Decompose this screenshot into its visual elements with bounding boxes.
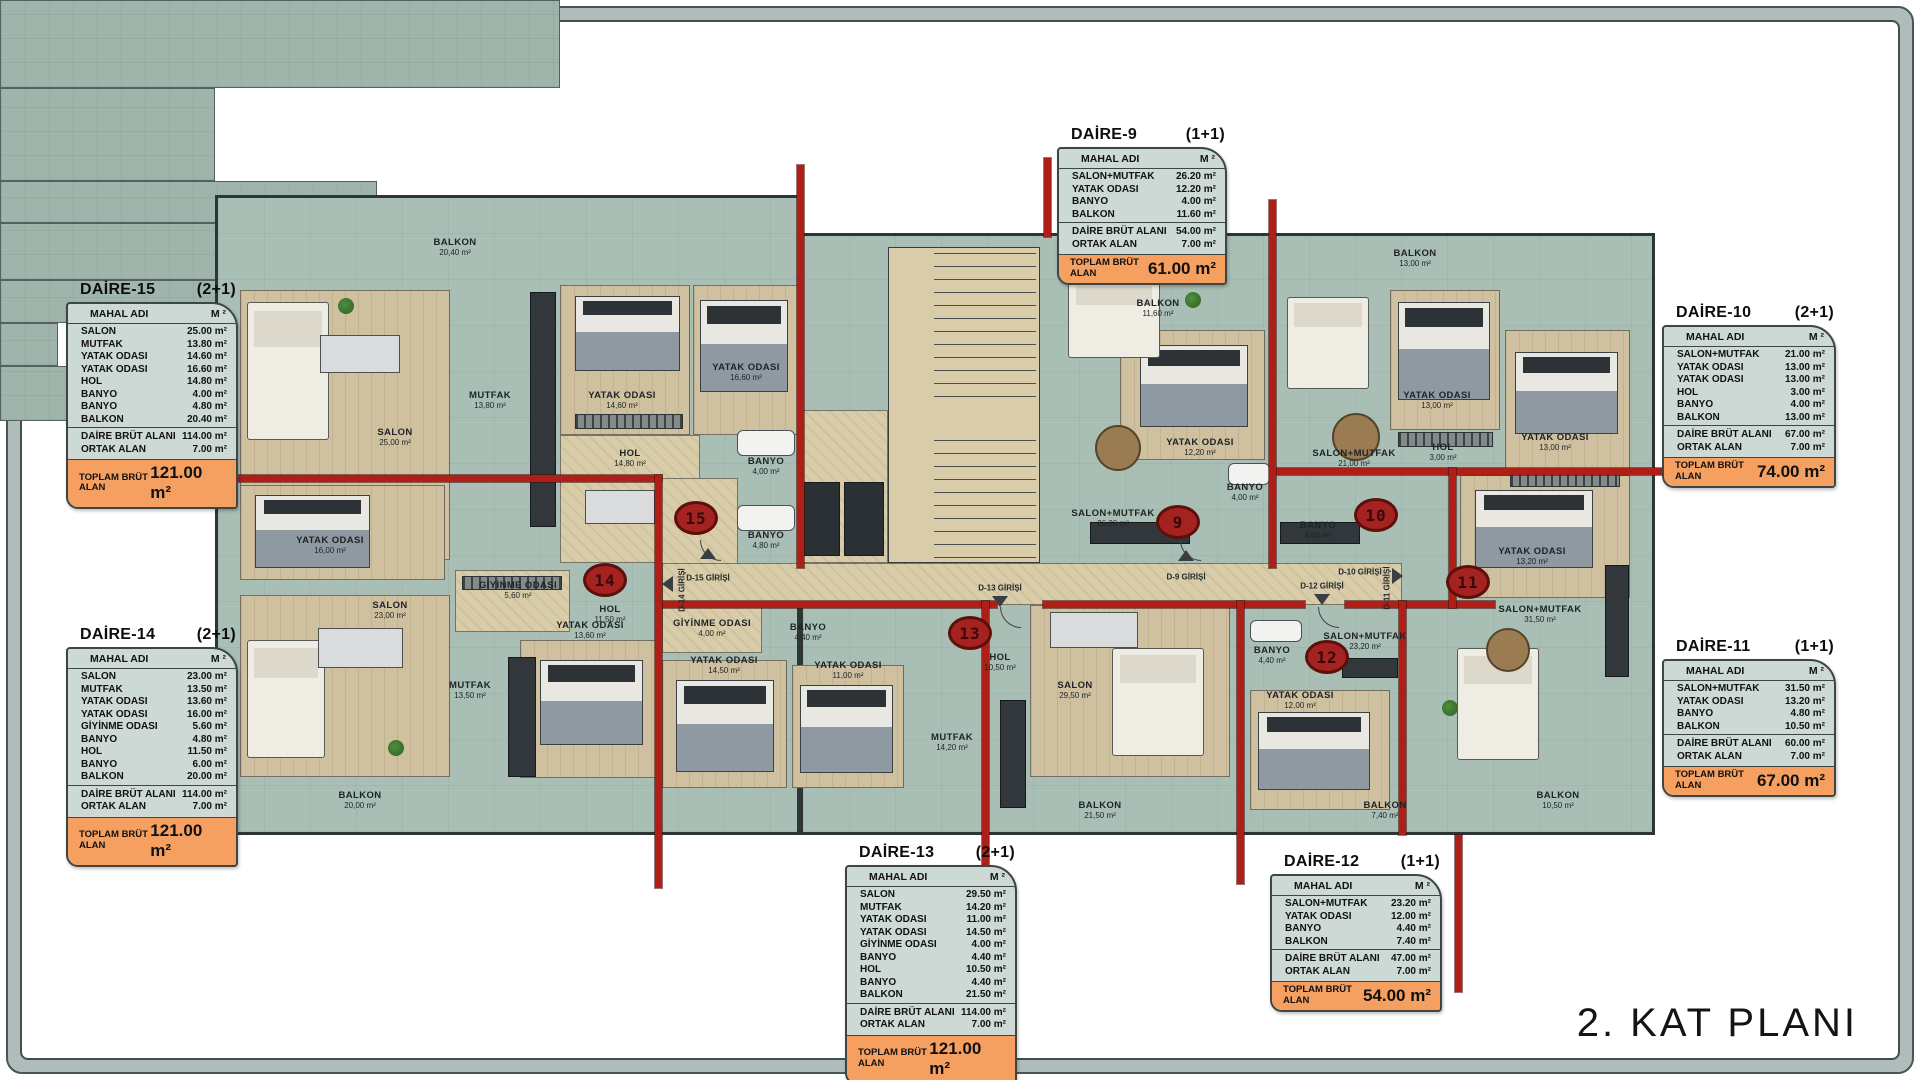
apartment-type: (2+1) [1795, 304, 1834, 322]
room-label: BALKON7,40 m² [1363, 800, 1406, 820]
room-rows: SALON+MUTFAK21.00 m²YATAK ODASI13.00 m²Y… [1664, 347, 1834, 425]
entrance-arrow-icon [1314, 594, 1330, 605]
col-m2: M ² [211, 653, 226, 665]
dining-table [585, 490, 655, 524]
table-row: SALON29.50 m² [847, 889, 1015, 902]
kitchen-counter [508, 657, 536, 777]
room-area: 13.50 m² [187, 684, 227, 697]
apartment-title: DAİRE-9(1+1) [1057, 126, 1227, 147]
room-label: YATAK ODASI16,60 m² [712, 362, 780, 382]
subtotal-section: DAİRE BRÜT ALANI67.00 m² ORTAK ALAN7.00 … [1664, 425, 1834, 457]
table-row: SALON+MUTFAK23.20 m² [1272, 898, 1440, 911]
round-table [1486, 628, 1530, 672]
sofa [1112, 648, 1204, 756]
unit-number: 15 [685, 509, 706, 528]
room-label: BALKON10,50 m² [1536, 790, 1579, 810]
room-label: SALON29,50 m² [1057, 680, 1092, 700]
room-area: 26.20 m² [1176, 171, 1216, 184]
room-label: YATAK ODASI13,60 m² [556, 620, 624, 640]
total-band: TOPLAM BRÜT ALAN67.00 m² [1664, 766, 1834, 795]
table-row: HOL11.50 m² [68, 746, 236, 759]
bathtub [737, 505, 795, 531]
table-row: YATAK ODASI12.00 m² [1272, 911, 1440, 924]
room-area: 10.50 m² [966, 964, 1006, 977]
kitchen-counter [530, 292, 556, 527]
dining-table [320, 335, 400, 373]
elevator-shaft [844, 482, 884, 556]
room-label: YATAK ODASI13,20 m² [1498, 546, 1566, 566]
room-label: BALKON11,60 m² [1136, 298, 1179, 318]
room-area: 14.60 m² [187, 351, 227, 364]
room-area: 4.80 m² [1791, 708, 1825, 721]
bed [255, 495, 370, 568]
area-table: MAHAL ADIM ² SALON+MUTFAK23.20 m²YATAK O… [1270, 874, 1442, 1012]
table-row: YATAK ODASI14.60 m² [68, 351, 236, 364]
room-area: 11.50 m² [188, 746, 227, 759]
balcony [0, 323, 58, 366]
unit-marker-14: 14 [583, 563, 627, 597]
bathtub [1250, 620, 1302, 642]
col-mahal-adi: MAHAL ADI [1081, 153, 1139, 165]
total-band: TOPLAM BRÜT ALAN121.00 m² [68, 817, 236, 865]
room-rows: SALON25.00 m²MUTFAK13.80 m²YATAK ODASI14… [68, 324, 236, 427]
room-label: BALKON13,00 m² [1393, 248, 1436, 268]
room-name: YATAK ODASI [81, 696, 148, 709]
room-label: YATAK ODASI12,00 m² [1266, 690, 1334, 710]
room-area: 4.00 m² [193, 389, 227, 402]
table-row: BALKON11.60 m² [1059, 209, 1225, 222]
apartment-card-daire-11: DAİRE-11(1+1) MAHAL ADIM ² SALON+MUTFAK3… [1662, 638, 1836, 797]
entrance-arrow-icon [1178, 550, 1194, 561]
room-name: SALON [81, 326, 116, 339]
room-name: BALKON [81, 771, 124, 784]
apartment-title: DAİRE-15(2+1) [66, 281, 238, 302]
plan-canvas: 15 14 13 9 10 11 12 D-15 GİRİŞİ D-14 GİR… [0, 0, 1920, 1080]
room-label: BANYO4,00 m² [748, 456, 784, 476]
floor-plan-title: 2. KAT PLANI [1577, 1001, 1858, 1046]
bed [676, 680, 774, 772]
subtotal-section: DAİRE BRÜT ALANI114.00 m² ORTAK ALAN7.00… [68, 785, 236, 817]
kitchen-counter [1000, 700, 1026, 808]
room-area: 10.50 m² [1785, 721, 1825, 734]
room-area: 25.00 m² [187, 326, 227, 339]
table-row: HOL3.00 m² [1664, 387, 1834, 400]
room-name: BANYO [1072, 196, 1108, 209]
table-row: MUTFAK13.50 m² [68, 684, 236, 697]
apartment-name: DAİRE-13 [859, 844, 934, 861]
room-name: BALKON [1677, 412, 1720, 425]
staircase [888, 247, 1040, 563]
room-area: 11.60 m² [1177, 209, 1216, 222]
table-row: BANYO4.80 m² [1664, 708, 1834, 721]
room-name: BANYO [860, 977, 896, 990]
brut-row: DAİRE BRÜT ALANI47.00 m² [1272, 953, 1440, 966]
room-label: MUTFAK13,80 m² [469, 390, 511, 410]
room-name: YATAK ODASI [1677, 362, 1744, 375]
room-label: SALON+MUTFAK26,20 m² [1071, 508, 1154, 528]
unit-marker-9: 9 [1156, 505, 1200, 539]
room-label: YATAK ODASI13,00 m² [1521, 432, 1589, 452]
sofa [247, 302, 329, 440]
brut-row: DAİRE BRÜT ALANI114.00 m² [68, 789, 236, 802]
room-name: SALON+MUTFAK [1677, 349, 1760, 362]
red-section-line [1043, 601, 1305, 608]
room-label: BALKON20,00 m² [338, 790, 381, 810]
table-row: YATAK ODASI16.60 m² [68, 364, 236, 377]
room-label: SALON+MUTFAK23,20 m² [1323, 631, 1406, 651]
room-name: GİYİNME ODASI [860, 939, 937, 952]
table-row: BANYO4.40 m² [847, 952, 1015, 965]
room-name: YATAK ODASI [1072, 184, 1139, 197]
table-row: YATAK ODASI16.00 m² [68, 709, 236, 722]
room-name: HOL [81, 746, 102, 759]
unit-marker-10: 10 [1354, 498, 1398, 532]
ortak-row: ORTAK ALAN7.00 m² [1272, 966, 1440, 979]
col-m2: M ² [1415, 880, 1430, 892]
apartment-name: DAİRE-15 [80, 281, 155, 298]
total-band: TOPLAM BRÜT ALAN121.00 m² [68, 459, 236, 507]
room-area: 13.20 m² [1785, 696, 1825, 709]
col-mahal-adi: MAHAL ADI [1686, 665, 1744, 677]
table-row: BALKON20.40 m² [68, 414, 236, 427]
room-area: 20.40 m² [187, 414, 227, 427]
room-label: SALON23,00 m² [372, 600, 407, 620]
room-name: YATAK ODASI [81, 364, 148, 377]
table-row: YATAK ODASI13.20 m² [1664, 696, 1834, 709]
room-name: YATAK ODASI [1677, 374, 1744, 387]
round-table [1095, 425, 1141, 471]
room-area: 14.20 m² [966, 902, 1006, 915]
entrance-arrow-icon [1392, 568, 1403, 584]
col-mahal-adi: MAHAL ADI [1294, 880, 1352, 892]
table-row: YATAK ODASI13.00 m² [1664, 374, 1834, 387]
room-area: 11.00 m² [967, 914, 1006, 927]
table-row: BANYO4.00 m² [1664, 399, 1834, 412]
table-row: SALON+MUTFAK26.20 m² [1059, 171, 1225, 184]
room-rows: SALON+MUTFAK31.50 m²YATAK ODASI13.20 m²B… [1664, 681, 1834, 734]
room-area: 13.00 m² [1785, 412, 1825, 425]
corridor [662, 563, 1402, 605]
bed [575, 296, 680, 371]
room-label: YATAK ODASI13,00 m² [1403, 390, 1471, 410]
room-area: 16.00 m² [187, 709, 227, 722]
ortak-row: ORTAK ALAN7.00 m² [1664, 442, 1834, 455]
room-name: SALON [81, 671, 116, 684]
room-name: YATAK ODASI [81, 709, 148, 722]
apartment-name: DAİRE-14 [80, 626, 155, 643]
room-name: YATAK ODASI [860, 927, 927, 940]
apartment-title: DAİRE-13(2+1) [845, 844, 1017, 865]
entrance-label-d11: D-11 GİRİŞİ [1383, 566, 1392, 609]
red-section-line [1345, 601, 1495, 608]
sofa [1068, 280, 1160, 358]
area-table: MAHAL ADIM ² SALON+MUTFAK21.00 m²YATAK O… [1662, 325, 1836, 488]
room-area: 4.80 m² [193, 734, 227, 747]
room-name: BANYO [81, 389, 117, 402]
room-name: BALKON [1072, 209, 1115, 222]
room-area: 4.40 m² [972, 977, 1006, 990]
subtotal-section: DAİRE BRÜT ALANI114.00 m² ORTAK ALAN7.00… [847, 1003, 1015, 1035]
entrance-label-d12: D-12 GİRİŞİ [1300, 582, 1344, 591]
room-name: SALON [860, 889, 895, 902]
red-section-line [175, 475, 662, 482]
room-label: SALON25,00 m² [377, 427, 412, 447]
room-area: 7.40 m² [1397, 936, 1431, 949]
table-row: BANYO4.80 m² [68, 401, 236, 414]
room-label: BANYO4,00 m² [1300, 520, 1336, 540]
apartment-card-daire-10: DAİRE-10(2+1) MAHAL ADIM ² SALON+MUTFAK2… [1662, 304, 1836, 488]
table-row: BALKON20.00 m² [68, 771, 236, 784]
kitchen-counter [1605, 565, 1629, 677]
red-section-line [1044, 158, 1051, 237]
apartment-card-daire-12: DAİRE-12(1+1) MAHAL ADIM ² SALON+MUTFAK2… [1270, 853, 1442, 1012]
room-label: BANYO4,40 m² [1254, 645, 1290, 665]
room-area: 29.50 m² [966, 889, 1006, 902]
col-m2: M ² [1809, 331, 1824, 343]
room-label: BANYO4,00 m² [1227, 482, 1263, 502]
table-header: MAHAL ADIM ² [1664, 661, 1834, 681]
table-header: MAHAL ADIM ² [1272, 876, 1440, 896]
room-area: 3.00 m² [1791, 387, 1825, 400]
table-header: MAHAL ADIM ² [68, 649, 236, 669]
table-row: SALON+MUTFAK21.00 m² [1664, 349, 1834, 362]
area-table: MAHAL ADIM ² SALON23.00 m²MUTFAK13.50 m²… [66, 647, 238, 867]
room-area: 21.50 m² [966, 989, 1006, 1002]
table-row: BALKON13.00 m² [1664, 412, 1834, 425]
unit-number: 11 [1457, 573, 1478, 592]
table-header: MAHAL ADIM ² [1059, 149, 1225, 169]
col-mahal-adi: MAHAL ADI [1686, 331, 1744, 343]
room-label: BANYO4,80 m² [748, 530, 784, 550]
table-header: MAHAL ADIM ² [68, 304, 236, 324]
room-label: HOL10,50 m² [984, 652, 1016, 672]
room-area: 14.80 m² [187, 376, 227, 389]
room-name: BALKON [860, 989, 903, 1002]
room-area: 23.20 m² [1391, 898, 1431, 911]
room-rows: SALON29.50 m²MUTFAK14.20 m²YATAK ODASI11… [847, 887, 1015, 1003]
room-label: SALON+MUTFAK21,00 m² [1312, 448, 1395, 468]
entrance-label-d13: D-13 GİRİŞİ [978, 584, 1022, 593]
room-area: 23.00 m² [187, 671, 227, 684]
room-label: YATAK ODASI14,60 m² [588, 390, 656, 410]
room-area: 16.60 m² [187, 364, 227, 377]
plant [338, 298, 354, 314]
room-area: 12.00 m² [1391, 911, 1431, 924]
table-row: BANYO4.40 m² [847, 977, 1015, 990]
area-table: MAHAL ADIM ² SALON+MUTFAK26.20 m²YATAK O… [1057, 147, 1227, 285]
room-name: GİYİNME ODASI [81, 721, 158, 734]
room-label: HOL14,80 m² [614, 448, 646, 468]
table-row: BANYO4.80 m² [68, 734, 236, 747]
table-row: YATAK ODASI12.20 m² [1059, 184, 1225, 197]
apartment-title: DAİRE-10(2+1) [1662, 304, 1836, 325]
entrance-label-d14: D-14 GİRİŞİ [678, 568, 687, 612]
ortak-row: ORTAK ALAN7.00 m² [68, 801, 236, 814]
balcony [0, 88, 215, 181]
room-area: 12.20 m² [1176, 184, 1216, 197]
room-area: 4.00 m² [972, 939, 1006, 952]
bed [540, 660, 643, 745]
ortak-row: ORTAK ALAN7.00 m² [1059, 239, 1225, 252]
apartment-name: DAİRE-10 [1676, 304, 1751, 321]
room-name: HOL [860, 964, 881, 977]
table-row: SALON25.00 m² [68, 326, 236, 339]
apartment-type: (2+1) [197, 626, 236, 644]
room-label: YATAK ODASI12,20 m² [1166, 437, 1234, 457]
room-label: YATAK ODASI16,00 m² [296, 535, 364, 555]
table-row: BANYO4.00 m² [68, 389, 236, 402]
bed [1515, 352, 1618, 434]
apartment-type: (1+1) [1795, 638, 1834, 656]
room-name: BALKON [1285, 936, 1328, 949]
red-section-line [1269, 200, 1276, 568]
apartment-type: (1+1) [1401, 853, 1440, 871]
room-name: YATAK ODASI [1677, 696, 1744, 709]
red-section-line [1272, 468, 1700, 475]
bed [1258, 712, 1370, 790]
room-label: MUTFAK14,20 m² [931, 732, 973, 752]
subtotal-section: DAİRE BRÜT ALANI54.00 m² ORTAK ALAN7.00 … [1059, 222, 1225, 254]
plant [388, 740, 404, 756]
table-row: HOL14.80 m² [68, 376, 236, 389]
unit-number: 13 [959, 624, 980, 643]
room-label: YATAK ODASI14,50 m² [690, 655, 758, 675]
room-name: HOL [1677, 387, 1698, 400]
kitchen-counter [1342, 658, 1398, 678]
total-band: TOPLAM BRÜT ALAN121.00 m² [847, 1035, 1015, 1080]
room-name: BANYO [1285, 923, 1321, 936]
room-name: SALON+MUTFAK [1677, 683, 1760, 696]
room-name: MUTFAK [81, 339, 123, 352]
room-name: BANYO [1677, 708, 1713, 721]
unit-number: 10 [1365, 506, 1386, 525]
brut-row: DAİRE BRÜT ALANI54.00 m² [1059, 226, 1225, 239]
room-area: 14.50 m² [966, 927, 1006, 940]
red-section-line [655, 475, 662, 888]
bed [800, 685, 893, 773]
apartment-type: (2+1) [976, 844, 1015, 862]
brut-row: DAİRE BRÜT ALANI60.00 m² [1664, 738, 1834, 751]
room-area: 4.00 m² [1182, 196, 1216, 209]
plant [1185, 292, 1201, 308]
unit-marker-15: 15 [674, 501, 718, 535]
room-area: 4.40 m² [1397, 923, 1431, 936]
room-name: YATAK ODASI [1285, 911, 1352, 924]
col-m2: M ² [211, 308, 226, 320]
room-rows: SALON+MUTFAK26.20 m²YATAK ODASI12.20 m²B… [1059, 169, 1225, 222]
room-area: 13.60 m² [187, 696, 227, 709]
plant [1442, 700, 1458, 716]
unit-number: 14 [594, 571, 615, 590]
col-mahal-adi: MAHAL ADI [90, 653, 148, 665]
unit-number: 9 [1173, 513, 1184, 532]
area-table: MAHAL ADIM ² SALON+MUTFAK31.50 m²YATAK O… [1662, 659, 1836, 797]
apartment-type: (2+1) [197, 281, 236, 299]
table-row: MUTFAK13.80 m² [68, 339, 236, 352]
subtotal-section: DAİRE BRÜT ALANI47.00 m² ORTAK ALAN7.00 … [1272, 949, 1440, 981]
apartment-name: DAİRE-12 [1284, 853, 1359, 870]
total-band: TOPLAM BRÜT ALAN61.00 m² [1059, 254, 1225, 283]
table-header: MAHAL ADIM ² [1664, 327, 1834, 347]
table-row: SALON+MUTFAK31.50 m² [1664, 683, 1834, 696]
col-m2: M ² [1809, 665, 1824, 677]
room-label: GİYİNME ODASI4,00 m² [673, 618, 751, 638]
unit-marker-13: 13 [948, 616, 992, 650]
sofa [247, 640, 325, 758]
room-label: HOL3,00 m² [1429, 442, 1456, 462]
room-name: MUTFAK [81, 684, 123, 697]
table-row: YATAK ODASI11.00 m² [847, 914, 1015, 927]
table-row: BALKON21.50 m² [847, 989, 1015, 1002]
room-rows: SALON23.00 m²MUTFAK13.50 m²YATAK ODASI13… [68, 669, 236, 785]
table-row: GİYİNME ODASI5.60 m² [68, 721, 236, 734]
subtotal-section: DAİRE BRÜT ALANI60.00 m² ORTAK ALAN7.00 … [1664, 734, 1834, 766]
table-row: YATAK ODASI14.50 m² [847, 927, 1015, 940]
apartment-type: (1+1) [1186, 126, 1225, 144]
apartment-card-daire-9: DAİRE-9(1+1) MAHAL ADIM ² SALON+MUTFAK26… [1057, 126, 1227, 285]
room-label: BALKON21,50 m² [1078, 800, 1121, 820]
room-area: 31.50 m² [1785, 683, 1825, 696]
room-area: 13.00 m² [1785, 374, 1825, 387]
room-area: 13.80 m² [187, 339, 227, 352]
unit-marker-11: 11 [1446, 565, 1490, 599]
room-label: BALKON20,40 m² [433, 237, 476, 257]
apartment-card-daire-14: DAİRE-14(2+1) MAHAL ADIM ² SALON23.00 m²… [66, 626, 238, 867]
apartment-title: DAİRE-12(1+1) [1270, 853, 1442, 874]
room-area: 5.60 m² [193, 721, 227, 734]
ortak-row: ORTAK ALAN7.00 m² [1664, 751, 1834, 764]
entrance-label-d9: D-9 GİRİŞİ [1166, 573, 1205, 582]
room-label: MUTFAK13,50 m² [449, 680, 491, 700]
ortak-row: ORTAK ALAN7.00 m² [847, 1019, 1015, 1032]
apartment-name: DAİRE-11 [1676, 638, 1750, 655]
subtotal-section: DAİRE BRÜT ALANI114.00 m² ORTAK ALAN7.00… [68, 427, 236, 459]
brut-row: DAİRE BRÜT ALANI67.00 m² [1664, 429, 1834, 442]
room-rows: SALON+MUTFAK23.20 m²YATAK ODASI12.00 m²B… [1272, 896, 1440, 949]
table-row: SALON23.00 m² [68, 671, 236, 684]
red-section-line [1455, 835, 1462, 992]
area-table: MAHAL ADIM ² SALON29.50 m²MUTFAK14.20 m²… [845, 865, 1017, 1080]
table-row: BANYO4.40 m² [1272, 923, 1440, 936]
stair-treads [934, 252, 1036, 397]
room-area: 21.00 m² [1785, 349, 1825, 362]
table-row: GİYİNME ODASI4.00 m² [847, 939, 1015, 952]
table-header: MAHAL ADIM ² [847, 867, 1015, 887]
apartment-title: DAİRE-14(2+1) [66, 626, 238, 647]
room-area: 6.00 m² [193, 759, 227, 772]
elevator-shaft [800, 482, 840, 556]
apartment-card-daire-15: DAİRE-15(2+1) MAHAL ADIM ² SALON25.00 m²… [66, 281, 238, 509]
bathtub [737, 430, 795, 456]
room-name: HOL [81, 376, 102, 389]
entrance-arrow-icon [700, 548, 716, 559]
room-name: YATAK ODASI [81, 351, 148, 364]
red-section-line [1237, 601, 1244, 884]
dining-table [318, 628, 403, 668]
table-row: BALKON7.40 m² [1272, 936, 1440, 949]
area-table: MAHAL ADIM ² SALON25.00 m²MUTFAK13.80 m²… [66, 302, 238, 509]
wardrobe [575, 414, 683, 429]
table-row: HOL10.50 m² [847, 964, 1015, 977]
col-m2: M ² [990, 871, 1005, 883]
room-name: BANYO [81, 759, 117, 772]
table-row: YATAK ODASI13.60 m² [68, 696, 236, 709]
table-row: BANYO6.00 m² [68, 759, 236, 772]
total-band: TOPLAM BRÜT ALAN74.00 m² [1664, 457, 1834, 486]
total-band: TOPLAM BRÜT ALAN54.00 m² [1272, 981, 1440, 1010]
entrance-arrow-icon [662, 576, 673, 592]
col-mahal-adi: MAHAL ADI [90, 308, 148, 320]
